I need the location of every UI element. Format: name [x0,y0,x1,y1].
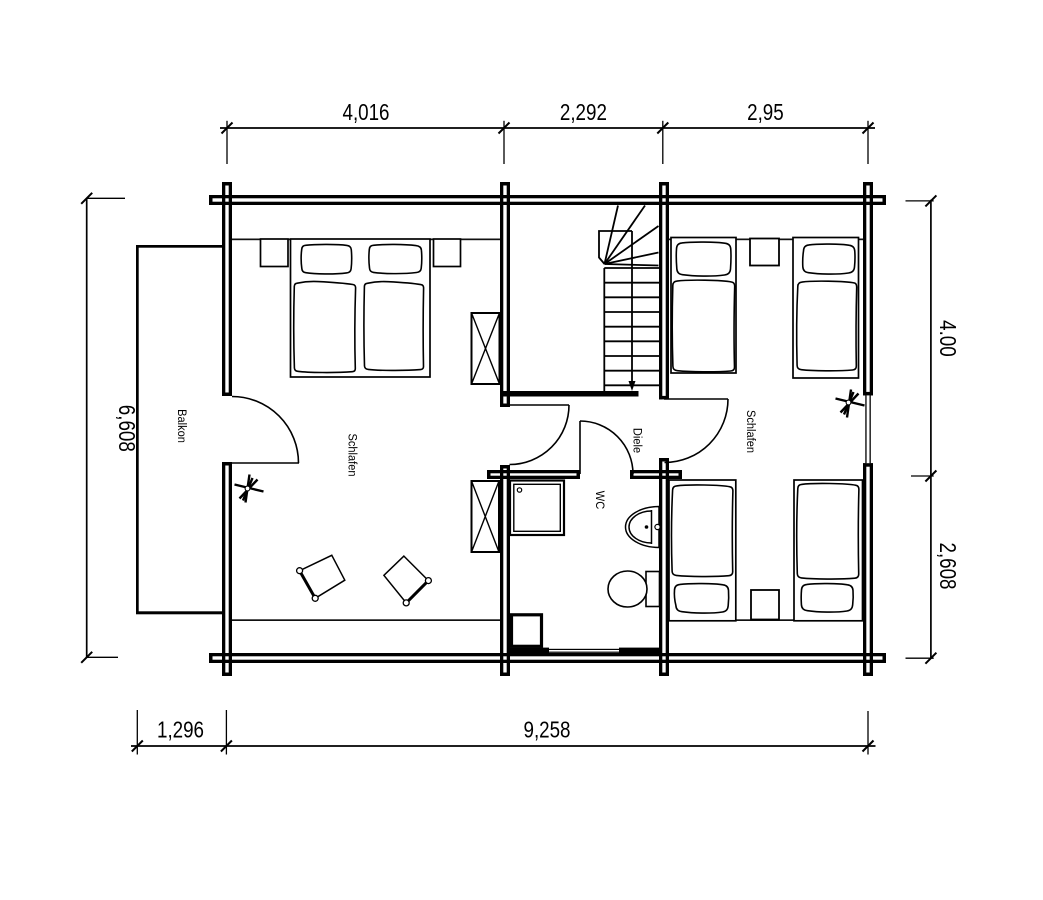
svg-text:1,296: 1,296 [157,717,204,744]
svg-text:4.00: 4.00 [934,320,961,357]
svg-text:6,608: 6,608 [113,405,140,452]
svg-text:Balkon: Balkon [175,409,189,443]
svg-text:Schlafen: Schlafen [744,410,758,453]
svg-text:4,016: 4,016 [342,99,389,126]
svg-text:9,258: 9,258 [523,717,570,744]
svg-text:Schlafen: Schlafen [345,433,359,476]
svg-text:2,608: 2,608 [934,542,961,589]
svg-text:Diele: Diele [630,428,644,453]
svg-text:2,95: 2,95 [747,99,784,126]
svg-text:2,292: 2,292 [560,99,607,126]
svg-text:WC: WC [593,491,607,509]
